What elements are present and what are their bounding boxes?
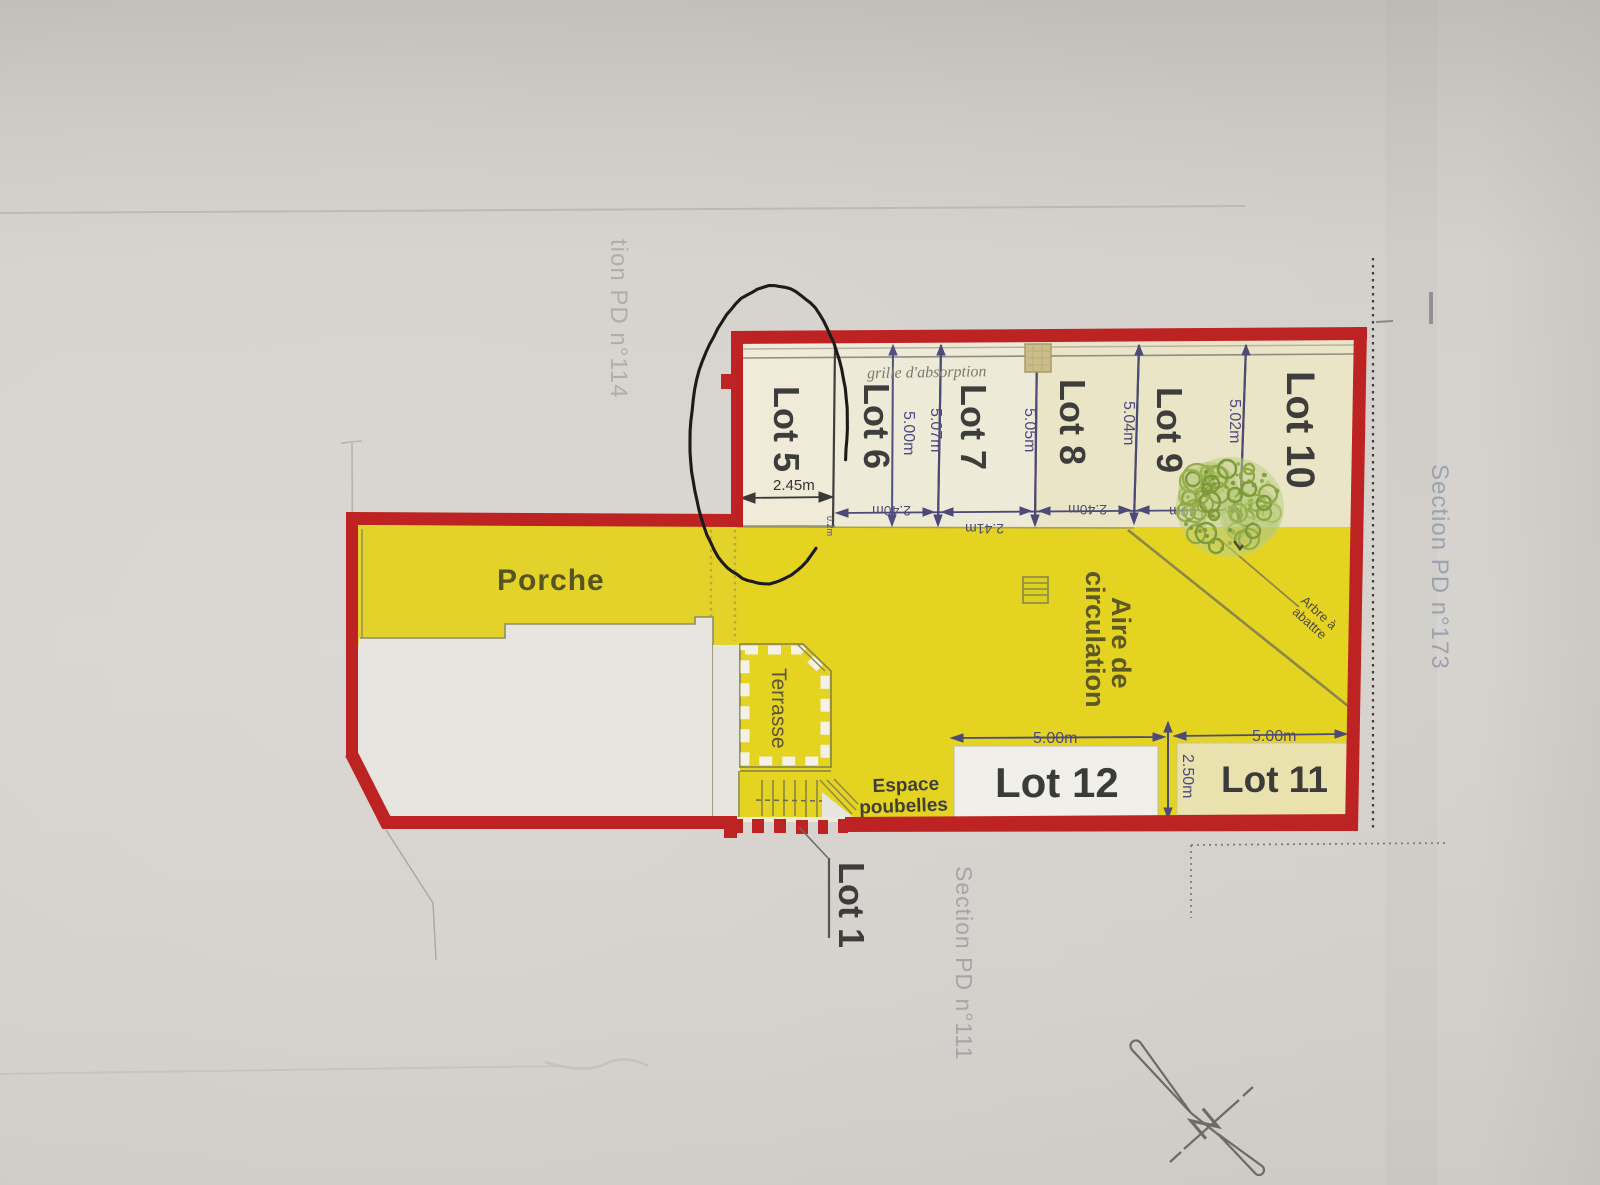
svg-text:poubelles: poubelles [859,795,948,819]
svg-text:5.00m: 5.00m [1252,728,1296,745]
svg-text:5.07m: 5.07m [927,408,944,452]
svg-text:Lot 8: Lot 8 [1052,379,1093,465]
svg-text:2.40m: 2.40m [872,503,911,519]
svg-text:2.50m: 2.50m [1179,754,1196,798]
svg-text:circulation: circulation [1080,571,1110,708]
svg-text:Lot 1: Lot 1 [831,862,872,948]
svg-text:2.40m: 2.40m [1068,502,1107,518]
svg-text:2.41m: 2.41m [965,521,1004,537]
svg-text:Porche: Porche [497,564,605,597]
svg-text:Lot 6: Lot 6 [856,383,897,469]
svg-text:Lot 12: Lot 12 [995,759,1119,806]
svg-text:grille d'absorption: grille d'absorption [867,363,987,382]
svg-text:0.2m: 0.2m [825,516,835,536]
svg-text:Espace: Espace [872,774,939,797]
svg-text:5.02m: 5.02m [1226,399,1243,443]
svg-text:Terrasse: Terrasse [767,668,790,749]
svg-text:5.00m: 5.00m [900,411,917,455]
svg-text:Lot 11: Lot 11 [1221,759,1328,800]
svg-text:5.00m: 5.00m [1033,730,1077,747]
svg-text:tion PD n°114: tion PD n°114 [605,239,632,399]
svg-text:Lot 9: Lot 9 [1149,387,1190,473]
svg-text:Lot 5: Lot 5 [766,386,807,472]
svg-text:5.04m: 5.04m [1120,401,1137,445]
svg-text:Lot 7: Lot 7 [953,384,994,470]
svg-text:2.45m: 2.45m [773,477,815,494]
svg-text:Lot 10: Lot 10 [1278,371,1322,489]
svg-text:5.05m: 5.05m [1021,408,1038,452]
svg-text:Section PD n°111: Section PD n°111 [951,866,977,1060]
